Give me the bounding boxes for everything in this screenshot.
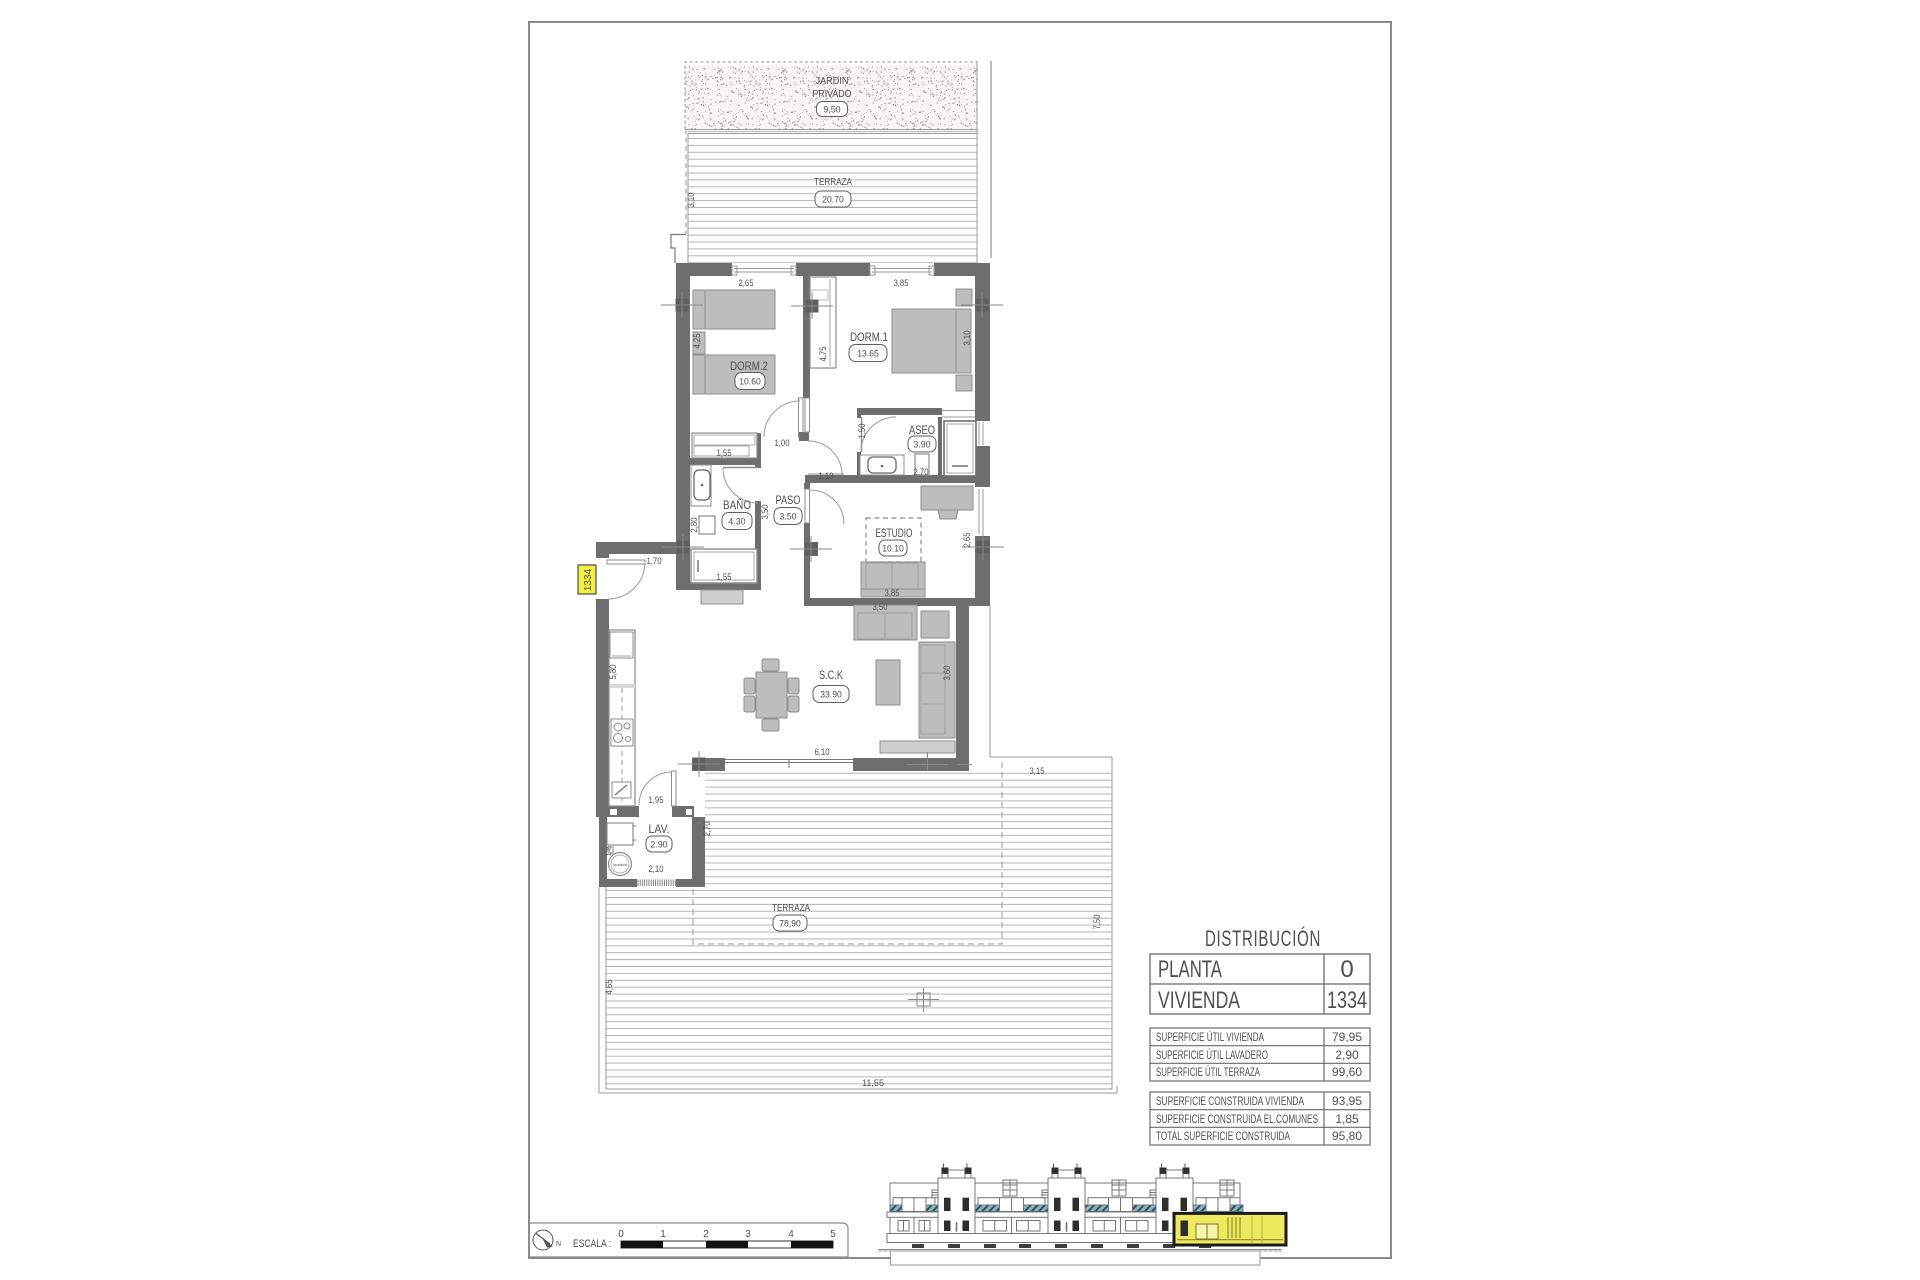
svg-text:1,00: 1,00 — [775, 438, 790, 448]
svg-text:3,10: 3,10 — [962, 331, 972, 346]
svg-text:9,50: 9,50 — [823, 104, 840, 115]
svg-text:79,95: 79,95 — [1332, 1030, 1362, 1044]
svg-text:7,50: 7,50 — [1092, 915, 1102, 930]
svg-text:2,10: 2,10 — [649, 864, 664, 874]
svg-text:SUPERFICIE ÚTIL LAVADERO: SUPERFICIE ÚTIL LAVADERO — [1156, 1047, 1268, 1062]
svg-text:4,25: 4,25 — [692, 334, 702, 349]
svg-text:PRIVADO: PRIVADO — [813, 89, 852, 100]
svg-text:4,75: 4,75 — [818, 347, 828, 362]
svg-text:78,90: 78,90 — [779, 918, 801, 929]
svg-text:SUPERFICIE CONSTRUIDA EL.COMUN: SUPERFICIE CONSTRUIDA EL.COMUNES — [1156, 1112, 1318, 1126]
svg-text:TERRAZA: TERRAZA — [772, 902, 810, 914]
svg-text:LAV.: LAV. — [649, 824, 670, 836]
svg-text:PLANTA: PLANTA — [1158, 956, 1222, 983]
svg-text:1,70: 1,70 — [647, 556, 662, 566]
svg-text:33.90: 33.90 — [820, 689, 842, 700]
svg-text:3: 3 — [745, 1229, 751, 1240]
svg-text:TERRAZA: TERRAZA — [814, 176, 852, 188]
svg-text:JARDIN: JARDIN — [816, 76, 849, 87]
svg-text:3,85: 3,85 — [894, 278, 909, 288]
svg-text:3,60: 3,60 — [942, 666, 952, 681]
svg-text:3.90: 3.90 — [913, 439, 930, 450]
svg-text:1,10: 1,10 — [819, 471, 834, 481]
svg-text:3,10: 3,10 — [686, 193, 696, 208]
svg-text:20.70: 20.70 — [822, 194, 844, 205]
svg-text:SUPERFICIE ÚTIL TERRAZA: SUPERFICIE ÚTIL TERRAZA — [1156, 1064, 1260, 1079]
svg-text:10.60: 10.60 — [739, 376, 761, 387]
svg-text:13.65: 13.65 — [857, 348, 879, 359]
svg-text:ESCALA :: ESCALA : — [573, 1238, 611, 1250]
svg-text:1334: 1334 — [583, 568, 594, 591]
svg-text:2,65: 2,65 — [739, 278, 754, 288]
svg-text:BAÑO: BAÑO — [723, 499, 751, 512]
svg-text:1,50: 1,50 — [857, 424, 867, 439]
svg-text:DORM.2: DORM.2 — [730, 361, 768, 373]
svg-text:2,80: 2,80 — [689, 518, 699, 533]
svg-text:ASEO: ASEO — [909, 425, 935, 437]
svg-text:3,15: 3,15 — [1030, 766, 1045, 776]
svg-text:lavadora: lavadora — [613, 863, 626, 867]
svg-text:N: N — [556, 1241, 561, 1248]
svg-text:1: 1 — [660, 1229, 666, 1240]
svg-text:99,60: 99,60 — [1332, 1065, 1362, 1079]
svg-text:5: 5 — [830, 1229, 836, 1240]
svg-text:4.30: 4.30 — [728, 516, 745, 527]
svg-text:6,10: 6,10 — [815, 747, 830, 757]
svg-text:1,85: 1,85 — [1335, 1112, 1359, 1126]
svg-text:S.C.K: S.C.K — [819, 670, 843, 682]
svg-text:2,70: 2,70 — [702, 822, 712, 837]
svg-text:11,55: 11,55 — [862, 1078, 884, 1088]
svg-text:4,65: 4,65 — [604, 980, 614, 995]
svg-text:ESTUDIO: ESTUDIO — [876, 528, 913, 540]
svg-text:95,80: 95,80 — [1332, 1129, 1362, 1143]
svg-text:1,95: 1,95 — [649, 795, 664, 805]
svg-text:3.50: 3.50 — [779, 511, 796, 522]
svg-text:1334: 1334 — [1327, 987, 1367, 1014]
svg-text:DORM.1: DORM.1 — [850, 332, 888, 344]
svg-text:93,95: 93,95 — [1332, 1094, 1362, 1108]
svg-text:SUPERFICIE CONSTRUIDA VIVIENDA: SUPERFICIE CONSTRUIDA VIVIENDA — [1156, 1094, 1304, 1108]
svg-text:VIVIENDA: VIVIENDA — [1158, 987, 1240, 1014]
svg-text:PASO: PASO — [776, 495, 801, 507]
svg-text:2,90: 2,90 — [1335, 1048, 1359, 1062]
svg-text:0: 0 — [1340, 956, 1353, 983]
svg-text:2,65: 2,65 — [962, 533, 972, 548]
svg-text:TOTAL SUPERFICIE CONSTRUIDA: TOTAL SUPERFICIE CONSTRUIDA — [1156, 1129, 1290, 1143]
svg-text:SUPERFICIE ÚTIL VIVIENDA: SUPERFICIE ÚTIL VIVIENDA — [1156, 1029, 1264, 1044]
svg-text:2: 2 — [703, 1229, 709, 1240]
svg-text:5,80: 5,80 — [608, 665, 618, 680]
svg-text:3,85: 3,85 — [885, 588, 900, 598]
svg-text:1,40: 1,40 — [607, 846, 613, 856]
svg-text:0: 0 — [618, 1229, 624, 1240]
svg-text:1,55: 1,55 — [717, 448, 732, 458]
svg-text:DISTRIBUCIÓN: DISTRIBUCIÓN — [1205, 926, 1321, 951]
svg-text:3,50: 3,50 — [760, 505, 770, 520]
svg-text:4: 4 — [788, 1229, 794, 1240]
svg-text:2,70: 2,70 — [914, 467, 929, 477]
svg-text:10.10: 10.10 — [882, 543, 904, 554]
svg-text:1,55: 1,55 — [717, 572, 732, 582]
svg-text:3,50: 3,50 — [873, 602, 888, 612]
svg-text:2.90: 2.90 — [650, 839, 667, 850]
